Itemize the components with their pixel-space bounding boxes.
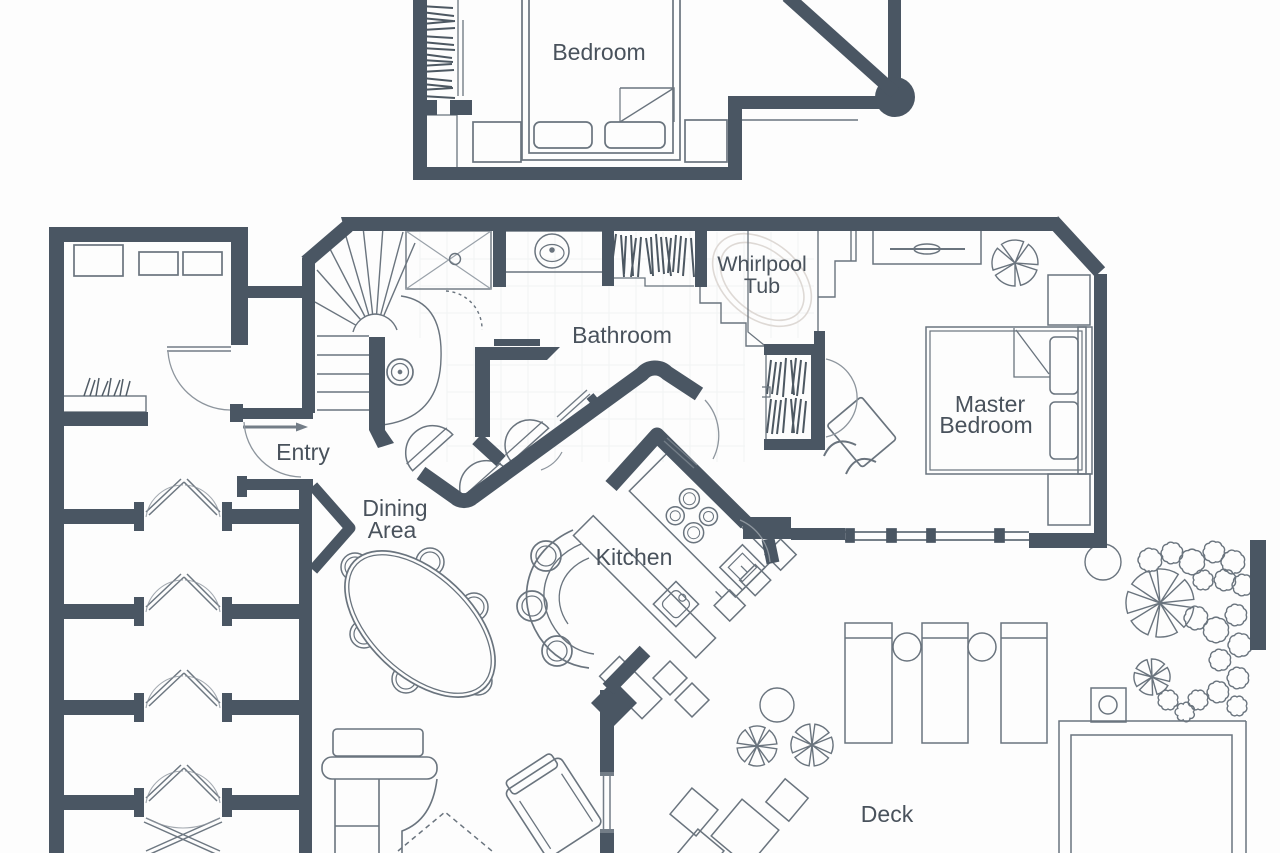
svg-text:Area: Area bbox=[368, 517, 417, 543]
svg-text:Whirlpool: Whirlpool bbox=[717, 252, 807, 276]
svg-text:Entry: Entry bbox=[276, 439, 330, 465]
svg-text:Tub: Tub bbox=[744, 274, 780, 298]
svg-text:Kitchen: Kitchen bbox=[596, 544, 673, 570]
svg-text:Bathroom: Bathroom bbox=[572, 322, 672, 348]
svg-text:Bedroom: Bedroom bbox=[939, 412, 1032, 438]
svg-text:Bedroom: Bedroom bbox=[552, 39, 645, 65]
svg-text:Deck: Deck bbox=[861, 801, 914, 827]
